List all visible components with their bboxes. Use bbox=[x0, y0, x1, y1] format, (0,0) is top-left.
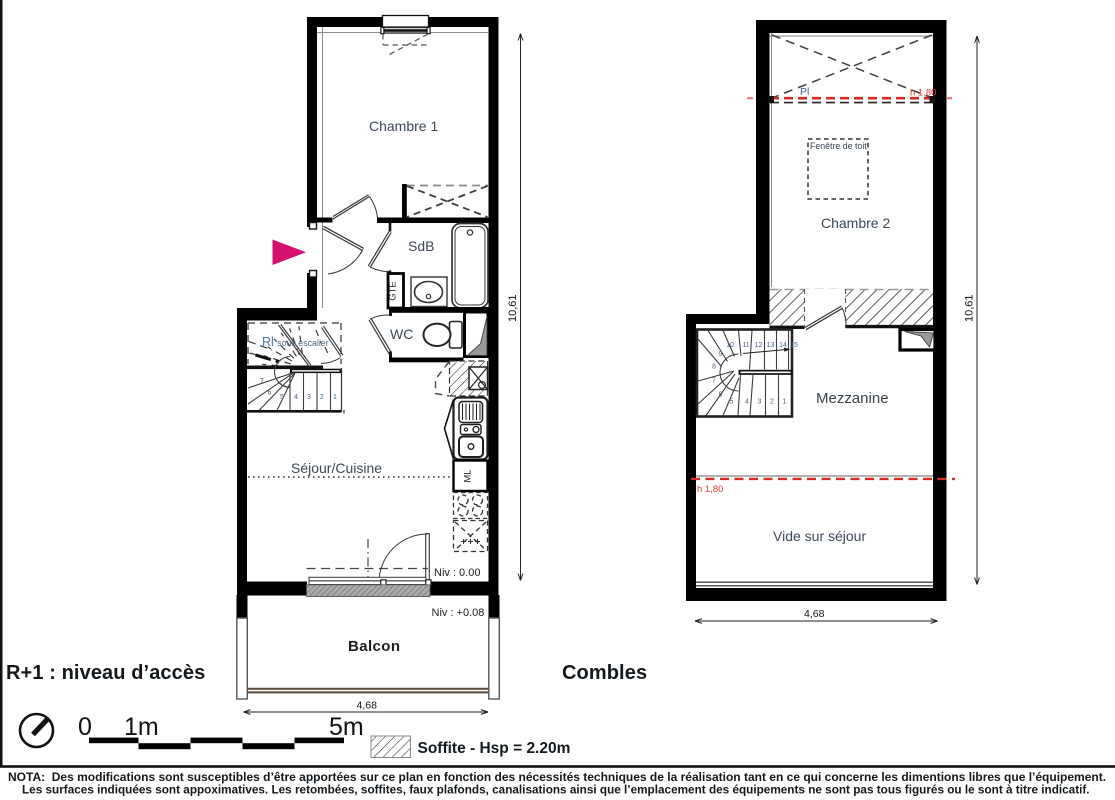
svg-text:3: 3 bbox=[307, 394, 311, 401]
svg-text:Séjour/Cuisine: Séjour/Cuisine bbox=[291, 460, 382, 476]
svg-text:7: 7 bbox=[260, 378, 264, 385]
svg-text:h 1,80: h 1,80 bbox=[697, 484, 723, 495]
svg-text:4,68: 4,68 bbox=[357, 700, 378, 712]
svg-text:Fenêtre de toit: Fenêtre de toit bbox=[810, 141, 867, 151]
svg-text:1m: 1m bbox=[124, 713, 159, 741]
svg-text:5m: 5m bbox=[329, 713, 364, 741]
svg-text:2: 2 bbox=[770, 399, 774, 406]
svg-text:ML: ML bbox=[463, 469, 474, 482]
svg-text:Vide sur séjour: Vide sur séjour bbox=[773, 528, 866, 544]
svg-text:4,68: 4,68 bbox=[804, 608, 825, 620]
svg-text:2: 2 bbox=[320, 394, 324, 401]
svg-text:Chambre 2: Chambre 2 bbox=[821, 215, 890, 231]
svg-text:8: 8 bbox=[712, 364, 716, 371]
svg-text:7: 7 bbox=[712, 378, 716, 385]
svg-text:GTE: GTE bbox=[388, 281, 399, 301]
svg-text:Balcon: Balcon bbox=[348, 638, 400, 655]
svg-text:3: 3 bbox=[758, 399, 762, 406]
svg-text:4: 4 bbox=[745, 399, 749, 406]
svg-text:10,61: 10,61 bbox=[964, 294, 976, 322]
svg-text:Soffite - Hsp = 2.20m: Soffite - Hsp = 2.20m bbox=[418, 740, 571, 757]
svg-text:6: 6 bbox=[719, 392, 723, 399]
svg-text:10: 10 bbox=[726, 342, 734, 349]
svg-text:4: 4 bbox=[294, 394, 298, 401]
svg-text:10,61: 10,61 bbox=[507, 294, 519, 322]
svg-text:6: 6 bbox=[268, 390, 272, 397]
svg-text:1: 1 bbox=[783, 399, 787, 406]
svg-text:WC: WC bbox=[390, 326, 413, 342]
svg-text:5: 5 bbox=[730, 399, 734, 406]
svg-text:Niv : 0.00: Niv : 0.00 bbox=[434, 567, 480, 579]
svg-text:11: 11 bbox=[742, 342, 749, 349]
svg-text:1: 1 bbox=[333, 394, 337, 401]
svg-text:SdB: SdB bbox=[408, 238, 434, 254]
svg-text:Les surfaces indiquées sont ap: Les surfaces indiquées sont appoximative… bbox=[22, 784, 1090, 797]
svg-text:NOTA: Des modifications sont: NOTA: Des modifications sont susceptible… bbox=[8, 770, 1106, 784]
svg-text:15: 15 bbox=[790, 342, 798, 349]
svg-text:Mezzanine: Mezzanine bbox=[816, 390, 889, 407]
svg-text:h 1.80: h 1.80 bbox=[910, 88, 936, 99]
svg-text:14: 14 bbox=[779, 342, 787, 349]
svg-text:Niv : +0.08: Niv : +0.08 bbox=[432, 607, 485, 619]
svg-text:9: 9 bbox=[719, 351, 723, 358]
svg-text:0: 0 bbox=[78, 713, 92, 741]
svg-text:12: 12 bbox=[755, 342, 763, 349]
svg-text:Chambre 1: Chambre 1 bbox=[369, 118, 438, 134]
svg-text:13: 13 bbox=[767, 342, 775, 349]
svg-text:Rl sous escalier: Rl sous escalier bbox=[262, 335, 329, 349]
svg-text:R+1 : niveau d’accès: R+1 : niveau d’accès bbox=[6, 662, 205, 684]
svg-text:5: 5 bbox=[280, 394, 284, 401]
svg-text:Combles: Combles bbox=[562, 662, 647, 684]
svg-text:Pl: Pl bbox=[800, 86, 809, 98]
